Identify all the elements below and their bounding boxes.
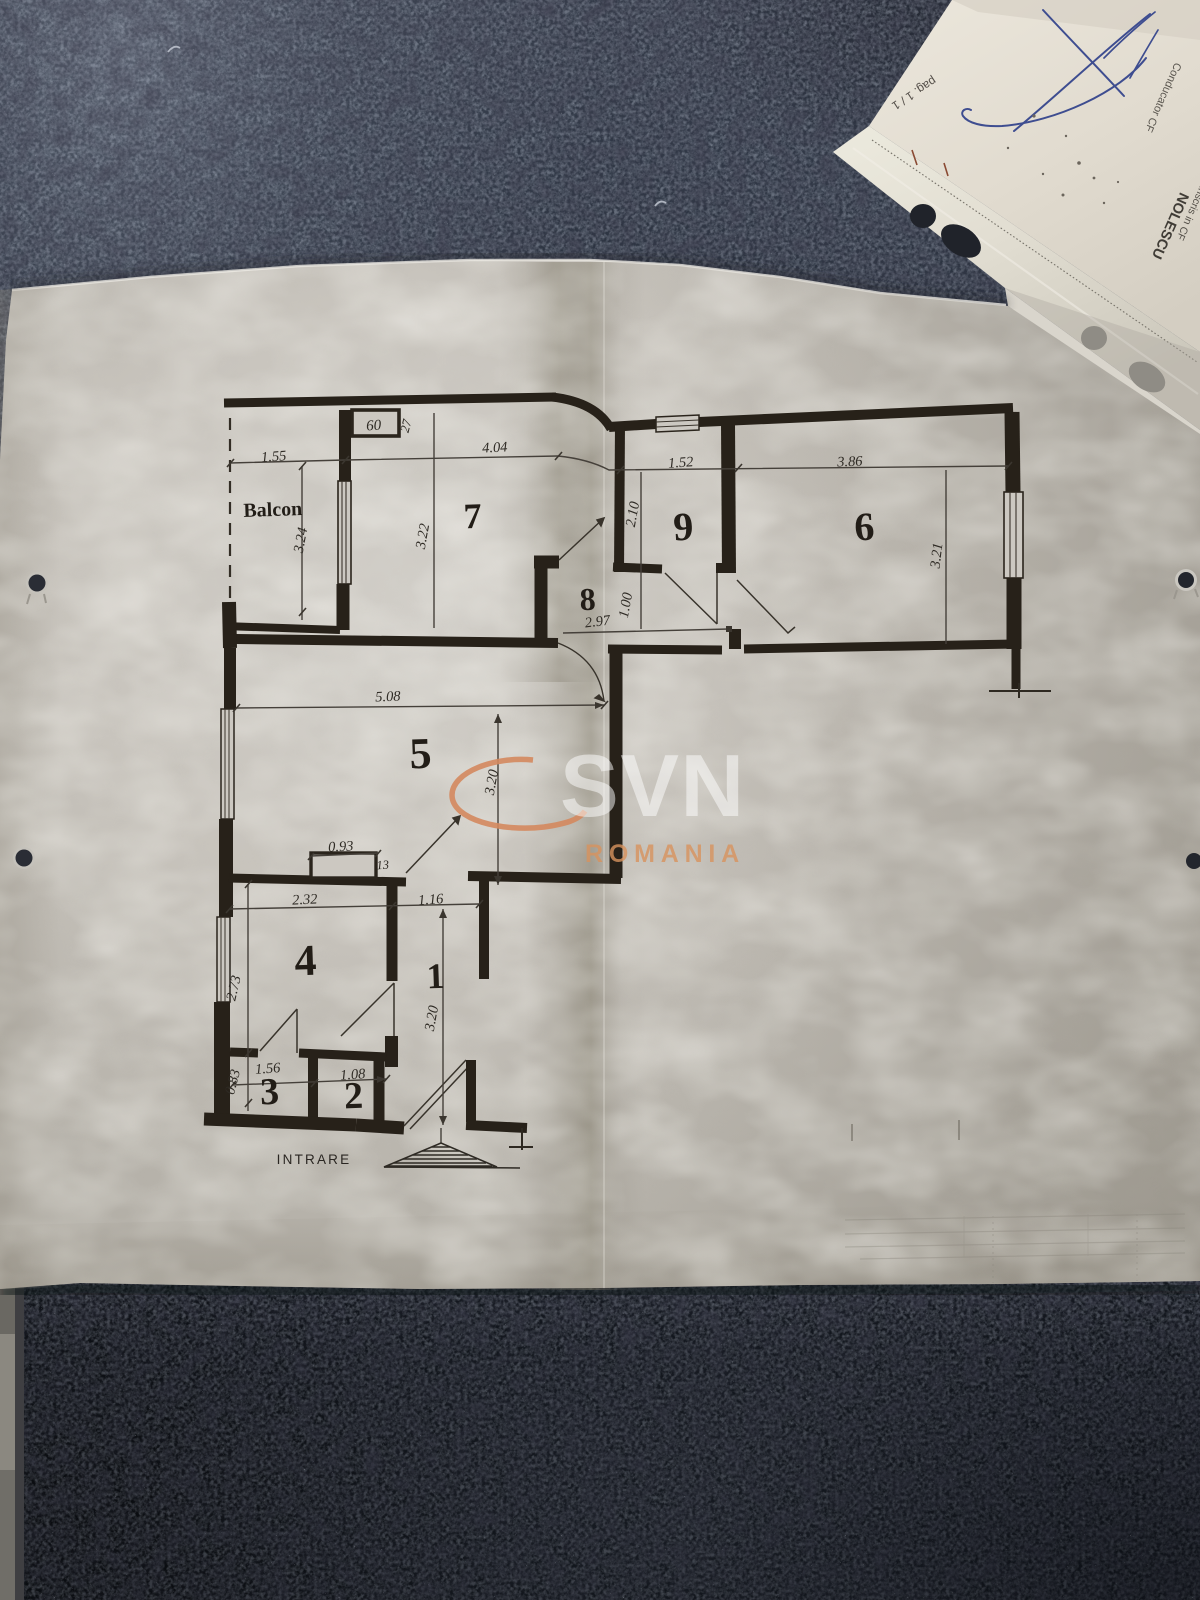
svg-text:60: 60: [366, 417, 383, 434]
svg-text:1.52: 1.52: [668, 454, 694, 472]
svg-text:0.93: 0.93: [328, 838, 354, 855]
svg-text:Balcon: Balcon: [243, 498, 303, 522]
svg-text:1.56: 1.56: [255, 1060, 282, 1078]
svg-text:INTRARE: INTRARE: [277, 1152, 352, 1167]
svg-text:5.08: 5.08: [375, 689, 402, 706]
svg-text:5: 5: [409, 729, 433, 779]
svg-text:1.16: 1.16: [418, 891, 445, 909]
svg-text:4.04: 4.04: [482, 439, 508, 456]
svg-text:1.08: 1.08: [340, 1066, 367, 1084]
svg-text:6: 6: [853, 504, 875, 550]
svg-text:13: 13: [376, 858, 389, 873]
svg-text:3.86: 3.86: [836, 454, 864, 471]
svg-text:2.97: 2.97: [584, 612, 612, 631]
svg-text:1.55: 1.55: [261, 448, 287, 466]
svg-text:ROMANIA: ROMANIA: [585, 840, 745, 868]
svg-text:2.32: 2.32: [292, 891, 318, 908]
svg-text:7: 7: [463, 496, 482, 537]
svg-text:9: 9: [672, 504, 694, 550]
svg-text:SVN: SVN: [560, 736, 744, 835]
svg-text:8: 8: [579, 581, 596, 618]
svg-text:1: 1: [426, 956, 445, 997]
svg-text:4: 4: [294, 936, 318, 986]
svg-text:3.21: 3.21: [927, 542, 946, 570]
